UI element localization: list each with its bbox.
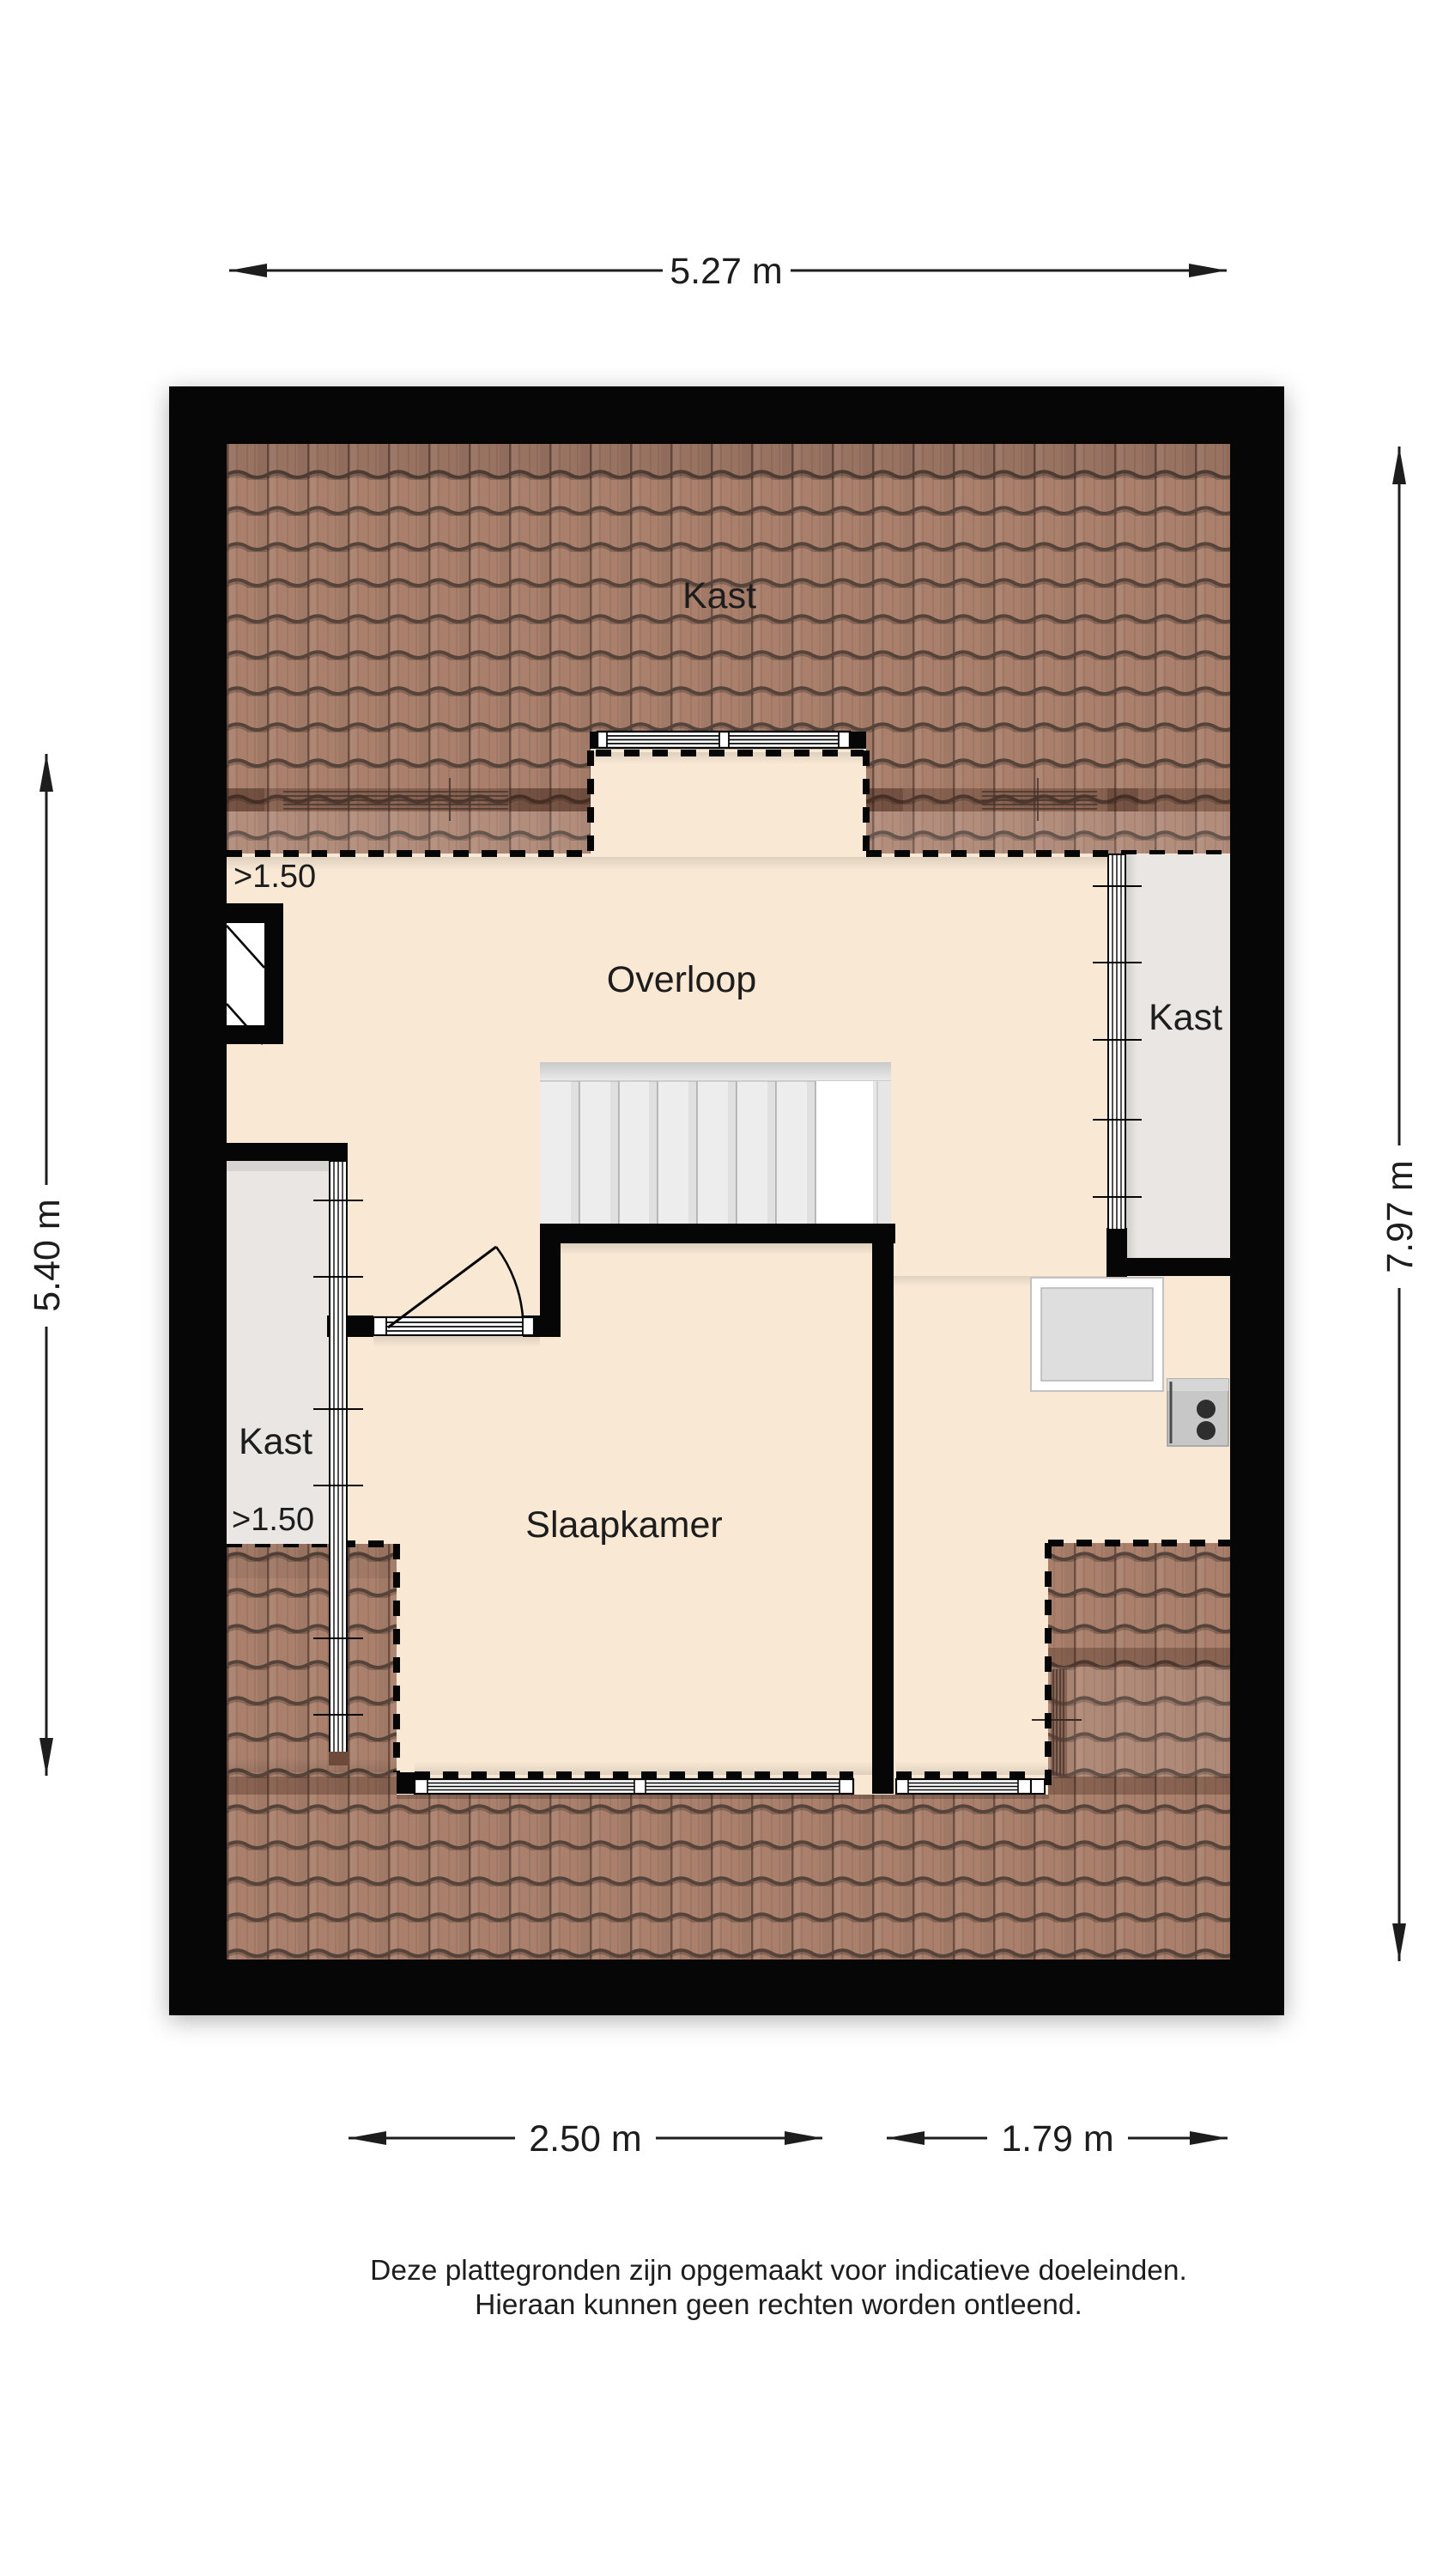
- svg-text:5.40 m: 5.40 m: [27, 1199, 68, 1311]
- svg-text:5.27 m: 5.27 m: [670, 251, 782, 292]
- svg-text:Slaapkamer: Slaapkamer: [525, 1504, 722, 1546]
- svg-text:>1.50: >1.50: [233, 859, 316, 895]
- svg-text:Deze plattegronden zijn opgema: Deze plattegronden zijn opgemaakt voor i…: [370, 2255, 1187, 2287]
- svg-text:Overloop: Overloop: [607, 959, 756, 1000]
- svg-text:Hieraan kunnen geen rechten wo: Hieraan kunnen geen rechten worden ontle…: [475, 2289, 1082, 2321]
- svg-text:>1.50: >1.50: [232, 1502, 314, 1538]
- svg-text:Kast: Kast: [1149, 997, 1222, 1038]
- svg-text:Kast: Kast: [239, 1421, 312, 1462]
- svg-text:2.50 m: 2.50 m: [529, 2118, 641, 2160]
- svg-text:7.97 m: 7.97 m: [1379, 1160, 1421, 1273]
- svg-text:1.79 m: 1.79 m: [1001, 2118, 1113, 2160]
- svg-text:Kast: Kast: [682, 575, 756, 617]
